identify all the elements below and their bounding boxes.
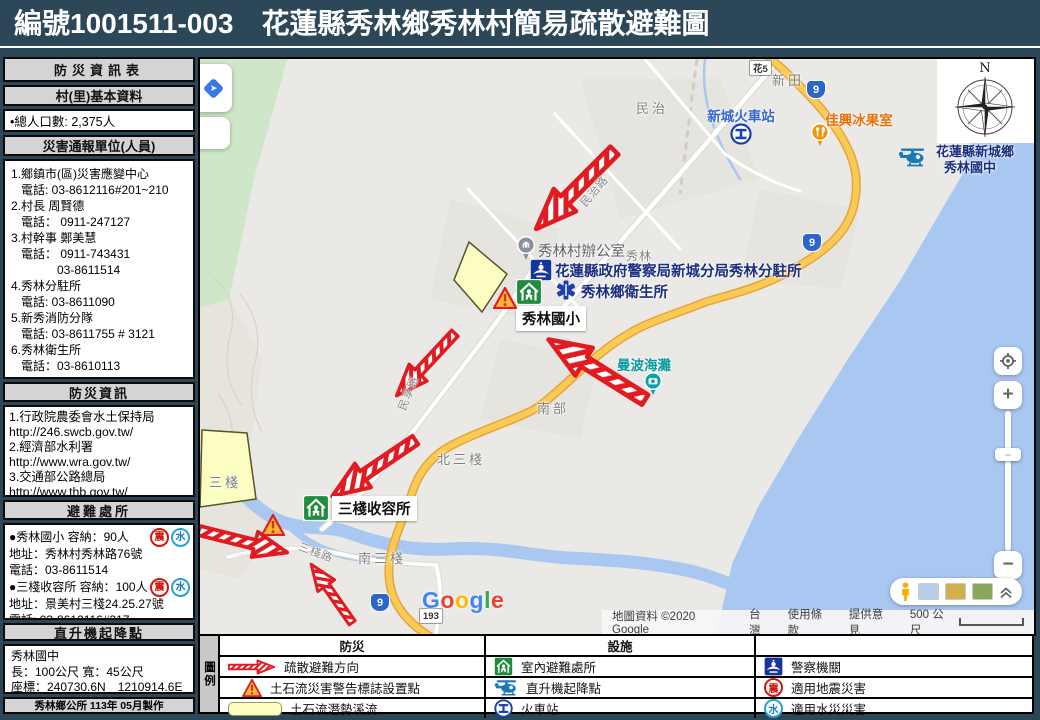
poi-label-beach[interactable]: 曼波海灘 — [617, 354, 671, 374]
sidebar-header-basic: 村(里)基本資料 — [3, 85, 195, 106]
sidebar-footer: 秀林鄉公所 113年 05月製作 — [3, 697, 195, 714]
legend-col-header-facility: 設施 — [486, 636, 756, 657]
helipad-icon — [494, 679, 518, 696]
route-9-shield: 9 — [802, 233, 822, 252]
feedback-link[interactable]: 提供意見 — [849, 606, 894, 636]
sidebar-header-info-table: 防災資訊表 — [3, 57, 195, 82]
legend-label: 疏散避難方向 — [284, 657, 359, 676]
quake-badge-icon: 震 — [764, 678, 783, 697]
restaurant-pin-icon[interactable] — [811, 123, 829, 152]
contact-line: 5.新秀消防分隊 — [11, 310, 191, 326]
police-station-icon — [764, 657, 783, 676]
helipad-icon — [898, 147, 926, 172]
sidebar-header-heliport: 直升機起降點 — [3, 623, 195, 641]
map-canvas[interactable]: 新田 民有 民治 南部 北三棧 三棧 南三棧 秀林 民治路 民享路 三棧路 9 … — [198, 57, 1036, 636]
poi-label-train-station[interactable]: 新城火車站 — [707, 105, 775, 125]
shelter-addr: 地址：秀林村秀林路76號 — [9, 547, 193, 563]
info-link: http://www.thb.gov.tw/ — [9, 485, 193, 497]
hazard-badges: 震 水 — [150, 578, 190, 597]
legend-item-warning-sign: 土石流災害警告標誌設置點 — [220, 678, 486, 699]
sidebar: 防災資訊表 村(里)基本資料 •總人口數: 2,375人 災害通報單位(人員) … — [3, 57, 195, 714]
legend-col-header-blank — [756, 636, 1032, 657]
evacuation-arrow-icon — [228, 659, 276, 675]
contact-line: 4.秀林分駐所 — [11, 278, 191, 294]
legend-item-helipad: 直升機起降點 — [486, 678, 756, 699]
map-attribution-bar: 地圖資料 ©2020 Google 台灣 使用條款 提供意見 500 公尺 — [602, 610, 1034, 634]
imagery-thumbnail[interactable] — [945, 583, 966, 600]
train-station-icon — [494, 699, 513, 718]
imagery-thumbnail[interactable] — [972, 583, 993, 600]
sidebar-header-shelters: 避難處所 — [3, 500, 195, 520]
map-label-area: 新田 — [772, 70, 804, 89]
my-location-icon — [1000, 353, 1016, 369]
compass-card: N — [937, 59, 1034, 143]
zoom-slider-track[interactable] — [1005, 411, 1011, 551]
indoor-shelter-icon — [303, 495, 329, 526]
map-label-area: 北三棧 — [437, 449, 485, 468]
poi-label-junior-high: 秀林國中 — [944, 157, 996, 176]
contact-line: 電話：03-8610113 — [21, 358, 191, 374]
legend-label: 土石流潛勢溪流 — [290, 699, 378, 718]
train-station-icon[interactable] — [730, 123, 752, 150]
contact-line: 6.秀林衛生所 — [11, 342, 191, 358]
route-9-shield: 9 — [806, 80, 826, 99]
directions-icon: ➤ — [202, 77, 223, 98]
terms-link[interactable]: 使用條款 — [788, 606, 833, 636]
population-row: •總人口數: 2,375人 — [3, 109, 195, 132]
scale-bar — [959, 618, 1024, 626]
legend: 圖例 防災 設施 疏散避難方向 室內避難處所 警察機關 土石流災害警告標誌設置點… — [198, 634, 1034, 714]
legend-label: 火車站 — [521, 699, 559, 718]
map-label-area: 三棧 — [209, 472, 241, 491]
contact-line: 2.村長 周賢德 — [11, 198, 191, 214]
legend-label: 室內避難處所 — [521, 657, 596, 676]
debris-flow-warning-icon — [242, 679, 262, 697]
debris-flow-warning-icon — [261, 514, 285, 541]
legend-item-debris-stream: 土石流潛勢溪流 — [220, 699, 486, 718]
flood-badge-icon: 水 — [764, 699, 783, 718]
plus-icon: + — [1002, 384, 1013, 406]
debris-flow-warning-icon — [493, 287, 517, 314]
indoor-shelter-icon — [494, 657, 513, 676]
google-logo[interactable]: Google — [422, 587, 504, 614]
info-link: http://246.swcb.gov.tw/ — [9, 425, 193, 440]
flood-badge-icon: 水 — [171, 578, 190, 597]
page-title: 編號1001511-003 花蓮縣秀林鄉秀林村簡易疏散避難圖 — [0, 0, 1040, 48]
shelter-label-elementary: 秀林國小 — [516, 306, 586, 331]
zoom-slider-handle[interactable]: – — [995, 448, 1021, 461]
info-link: 1.行政院農委會水土保持局 — [9, 410, 193, 425]
streetview-thumbnail-bar — [890, 578, 1022, 605]
quake-badge-icon: 震 — [150, 528, 169, 547]
legend-label: 警察機關 — [791, 657, 841, 676]
shelter-name: ●秀林國小 容納：90人 — [9, 530, 129, 546]
legend-item-indoor-shelter: 室內避難處所 — [486, 657, 756, 678]
shelter-addr: 地址：景美村三棧24.25.27號 — [9, 597, 193, 613]
legend-title: 圖例 — [198, 634, 220, 714]
contact-line: 電話: 03-8611755 # 3121 — [21, 326, 191, 342]
shelter-entry-name: ●三棧收容所 容納：100人 震 水 — [9, 578, 193, 597]
contact-line: 電話: 03-8612116#201~210 — [21, 182, 191, 198]
attribution-region[interactable]: 台灣 — [749, 606, 772, 636]
route-hua5-shield: 花5 — [749, 60, 772, 76]
scale-control: 500 公尺 — [910, 606, 1024, 636]
shelter-label-sanzhan: 三棧收容所 — [332, 496, 417, 521]
zoom-out-button[interactable]: − — [994, 551, 1022, 579]
shelter-entry-name: ●秀林國小 容納：90人 震 水 — [9, 528, 193, 547]
minus-icon: – — [1005, 450, 1011, 460]
minus-icon: − — [1002, 554, 1013, 576]
contact-line: 電話： 0911-743431 — [21, 246, 191, 262]
contact-list: 1.鄉鎮市(區)災害應變中心 電話: 03-8612116#201~210 2.… — [3, 159, 195, 379]
hazard-badges: 震 水 — [150, 528, 190, 547]
contact-line: 3.村幹事 鄭美慧 — [11, 230, 191, 246]
map-label-area: 南部 — [537, 398, 569, 417]
attribution-copyright: 地圖資料 ©2020 Google — [612, 608, 733, 636]
directions-button[interactable]: ➤ — [198, 64, 232, 112]
contact-line: 電話: 03-8611090 — [21, 294, 191, 310]
contact-line: 電話： 0911-247127 — [21, 214, 191, 230]
contact-line: 03-8611514 — [57, 262, 191, 278]
legend-item-police: 警察機關 — [756, 657, 1032, 678]
compass-n-label: N — [979, 61, 990, 76]
map-label-area: 南三棧 — [358, 548, 406, 567]
flood-badge-icon: 水 — [171, 528, 190, 547]
health-center-icon — [556, 280, 576, 305]
contact-line: 1.鄉鎮市(區)災害應變中心 — [11, 166, 191, 182]
pegman-icon[interactable] — [899, 582, 912, 602]
info-link: 3.交通部公路總局 — [9, 470, 193, 485]
heliport-name: 秀林國中 — [11, 649, 193, 665]
legend-item-train-station: 火車站 — [486, 699, 756, 718]
debris-stream-swatch — [228, 702, 282, 716]
evacuation-arrow — [303, 558, 361, 628]
photo-spot-pin-icon[interactable] — [644, 372, 662, 401]
scale-label: 500 公尺 — [910, 606, 954, 636]
debris-flow-zone — [200, 430, 256, 507]
shelter-name: ●三棧收容所 容納：100人 — [9, 580, 148, 596]
legend-label: 適用水災災害 — [791, 699, 866, 718]
quake-badge-icon: 震 — [150, 578, 169, 597]
legend-table: 防災 設施 疏散避難方向 室內避難處所 警察機關 土石流災害警告標誌設置點 直升… — [220, 634, 1034, 714]
map-card[interactable] — [198, 117, 230, 149]
shelter-tel: 電話：03-8611514 — [9, 563, 193, 579]
legend-label: 適用地震災害 — [791, 678, 866, 697]
map-label-area: 民治 — [636, 98, 668, 117]
poi-label-police: 花蓮縣政府警察局新城分局秀林分駐所 — [555, 260, 802, 281]
poi-label-ice-shop[interactable]: 佳興冰果室 — [825, 109, 893, 129]
info-link-list: 1.行政院農委會水土保持局 http://246.swcb.gov.tw/ 2.… — [3, 405, 195, 497]
legend-label: 直升機起降點 — [526, 678, 601, 697]
shelter-tel: 電話: 03-8612116#317 — [9, 613, 193, 620]
legend-item-evac-direction: 疏散避難方向 — [220, 657, 486, 678]
shelter-list: ●秀林國小 容納：90人 震 水 地址：秀林村秀林路76號 電話：03-8611… — [3, 523, 195, 620]
my-location-button[interactable] — [994, 347, 1022, 375]
compass-rose-icon: N — [937, 59, 1034, 143]
expand-chevron-icon[interactable] — [999, 585, 1013, 599]
sidebar-header-report-units: 災害通報單位(人員) — [3, 135, 195, 156]
legend-label: 土石流災害警告標誌設置點 — [270, 678, 420, 697]
info-link: 2.經濟部水利署 — [9, 440, 193, 455]
heliport-coord: 座標：240730.6N 1210914.6E — [11, 680, 193, 694]
legend-item-flood: 水 適用水災災害 — [756, 699, 1032, 718]
evacuation-arrow — [525, 139, 626, 240]
legend-item-quake: 震 適用地震災害 — [756, 678, 1032, 699]
poi-label-health-center: 秀林鄉衛生所 — [581, 281, 668, 302]
sidebar-header-info: 防災資訊 — [3, 382, 195, 402]
zoom-in-button[interactable]: + — [994, 381, 1022, 409]
heliport-size: 長：100公尺 寬：45公尺 — [11, 665, 193, 681]
heliport-info: 秀林國中 長：100公尺 寬：45公尺 座標：240730.6N 1210914… — [3, 644, 195, 694]
route-9-shield: 9 — [370, 593, 390, 612]
poi-label-village-office[interactable]: 秀林村辦公室 — [538, 240, 625, 261]
imagery-thumbnail[interactable] — [918, 583, 939, 600]
legend-col-header-disaster: 防災 — [220, 636, 486, 657]
info-link: http://www.wra.gov.tw/ — [9, 455, 193, 470]
